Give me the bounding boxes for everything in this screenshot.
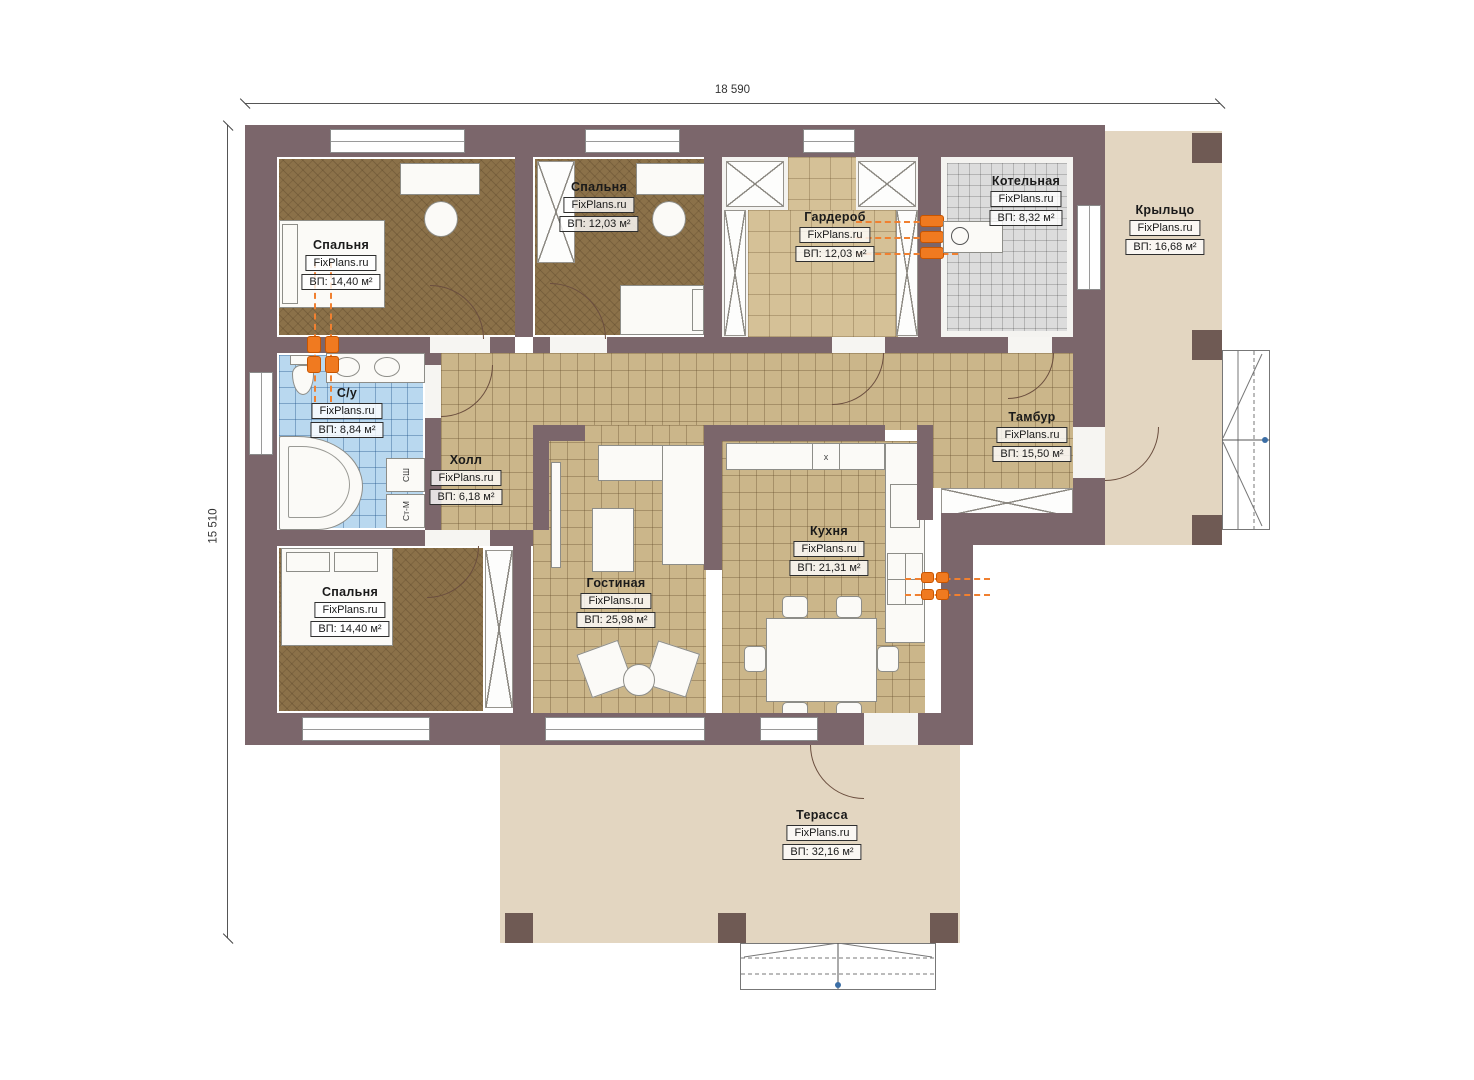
vent-marker: x [812, 443, 840, 470]
window [760, 717, 818, 741]
washer-label: Ст-М [400, 501, 410, 521]
porch-stairs [1222, 350, 1270, 530]
wall-hall-living [533, 441, 549, 530]
window [1077, 205, 1101, 290]
room-label-porch: Крыльцо FixPlans.ru ВП: 16,68 м² [1125, 203, 1204, 255]
wall-bedroom1-right [515, 157, 533, 337]
closet-wardrobe-right [896, 210, 918, 336]
room-area: ВП: 15,50 м² [992, 446, 1071, 462]
door-opening-bedroom-3 [425, 530, 490, 546]
room-label-vestibule: Тамбур FixPlans.ru ВП: 15,50 м² [992, 410, 1071, 462]
dimension-line-left [227, 125, 228, 938]
room-name: Гардероб [795, 210, 874, 224]
dimension-height-label: 15 510 [208, 508, 220, 543]
dining-chair [836, 596, 862, 618]
wall-kitchen-top [722, 425, 885, 441]
room-label-bedroom-1: Спальня FixPlans.ru ВП: 14,40 м² [301, 238, 380, 290]
room-area: ВП: 12,03 м² [559, 216, 638, 232]
heating-manifold [936, 589, 949, 600]
watermark-fixplans: FixPlans.ru [305, 255, 376, 271]
room-name: Спальня [310, 585, 389, 599]
wall-corridor-top [533, 337, 550, 353]
wall-boilerroom-bottom [941, 337, 1008, 353]
room-area: ВП: 21,31 м² [789, 560, 868, 576]
desk-bedroom-2 [636, 163, 706, 195]
window [330, 129, 465, 153]
door-opening-entrance [1073, 427, 1105, 478]
room-name: Котельная [989, 174, 1062, 188]
room-name: Спальня [301, 238, 380, 252]
dimension-tick [223, 933, 234, 944]
heating-manifold [936, 572, 949, 583]
window [302, 717, 430, 741]
room-area: ВП: 14,40 м² [310, 621, 389, 637]
pillow [286, 552, 330, 572]
dining-chair [744, 646, 766, 672]
watermark-fixplans: FixPlans.ru [563, 197, 634, 213]
room-area: ВП: 14,40 м² [301, 274, 380, 290]
terrace-pillar [505, 913, 533, 943]
sink-basin [374, 357, 400, 377]
heating-manifold [921, 572, 934, 583]
chair-bedroom-2 [652, 201, 686, 237]
heating-manifold [307, 356, 321, 373]
watermark-fixplans: FixPlans.ru [786, 825, 857, 841]
wall-bedroom1-bathroom [277, 337, 430, 353]
closet-wardrobe-top-right [858, 161, 916, 207]
window [249, 372, 273, 455]
watermark-fixplans: FixPlans.ru [1129, 220, 1200, 236]
washing-machine: Ст-М [386, 494, 425, 528]
door-opening-boiler-room [1008, 337, 1052, 353]
room-name: Спальня [559, 180, 638, 194]
door-opening-bedroom-1 [430, 337, 490, 353]
room-area: ВП: 32,16 м² [782, 844, 861, 860]
coffee-table [592, 508, 634, 572]
dining-chair [877, 646, 899, 672]
room-area: ВП: 6,18 м² [429, 489, 502, 505]
porch-pillar [1192, 330, 1222, 360]
heating-manifold [920, 247, 944, 259]
door-opening-wardrobe [832, 337, 885, 353]
dryer-unit: СШ [386, 458, 425, 492]
wall-boilerroom-bottom [1052, 337, 1073, 353]
terrace-pillar [930, 913, 958, 943]
porch-pillar [1192, 515, 1222, 545]
room-area: ВП: 12,03 м² [795, 246, 874, 262]
boiler-dial [951, 227, 969, 245]
room-label-living-room: Гостиная FixPlans.ru ВП: 25,98 м² [576, 576, 655, 628]
wall-bedroom1-bathroom [490, 337, 515, 353]
room-name: Гостиная [576, 576, 655, 590]
wall-bathroom-bedroom3 [277, 530, 425, 546]
wall-kitchen-vestibule [917, 425, 933, 520]
dimension-tick [223, 120, 234, 131]
side-table [623, 664, 655, 696]
terrace-pillar [718, 913, 746, 943]
sofa-vertical-section [662, 445, 706, 565]
watermark-fixplans: FixPlans.ru [793, 541, 864, 557]
watermark-fixplans: FixPlans.ru [990, 191, 1061, 207]
closet-wardrobe-left [724, 210, 746, 336]
heating-manifold [920, 215, 944, 227]
wall-corridor-top [885, 337, 941, 353]
watermark-fixplans: FixPlans.ru [580, 593, 651, 609]
room-name: С/у [310, 386, 383, 400]
kitchen-counter-top [726, 443, 885, 470]
wall-bedroom3-top [490, 530, 533, 546]
dimension-line-top [245, 103, 1220, 104]
heating-manifold [325, 336, 339, 353]
watermark-fixplans: FixPlans.ru [314, 602, 385, 618]
wall-living-top [533, 425, 585, 441]
closet-bedroom-3 [485, 550, 513, 708]
room-area: ВП: 8,32 м² [989, 210, 1062, 226]
wall-exterior-right-upper [1073, 125, 1105, 545]
wall-corridor-top [607, 337, 832, 353]
pillow [334, 552, 378, 572]
window [803, 129, 855, 153]
room-area: ВП: 16,68 м² [1125, 239, 1204, 255]
watermark-fixplans: FixPlans.ru [799, 227, 870, 243]
watermark-fixplans: FixPlans.ru [311, 403, 382, 419]
wall-bedroom2-right [704, 157, 722, 337]
floor-plan-canvas: x СШ Ст-М [0, 0, 1474, 1080]
heating-manifold [921, 589, 934, 600]
door-opening-bedroom-2 [550, 337, 607, 353]
heating-manifold [325, 356, 339, 373]
chair-bedroom-1 [424, 201, 458, 237]
wall-exterior-step [941, 513, 1105, 545]
pillow [692, 289, 704, 331]
door-opening-bathroom [425, 365, 441, 418]
dryer-label: СШ [401, 468, 411, 482]
wall-living-kitchen [704, 425, 722, 570]
wall-bathroom-right [425, 353, 441, 365]
porch-pillar [1192, 133, 1222, 163]
room-name: Тамбур [992, 410, 1071, 424]
room-name: Кухня [789, 524, 868, 538]
room-label-hall: Холл FixPlans.ru ВП: 6,18 м² [429, 453, 502, 505]
window [585, 129, 680, 153]
dining-chair [782, 596, 808, 618]
closet-wardrobe-top-left [726, 161, 784, 207]
watermark-fixplans: FixPlans.ru [430, 470, 501, 486]
room-name: Терасса [782, 808, 861, 822]
dining-table [766, 618, 877, 702]
room-label-bedroom-2: Спальня FixPlans.ru ВП: 12,03 м² [559, 180, 638, 232]
window [545, 717, 705, 741]
desk-bedroom-1 [400, 163, 480, 195]
room-name: Холл [429, 453, 502, 467]
room-label-bedroom-3: Спальня FixPlans.ru ВП: 14,40 м² [310, 585, 389, 637]
kitchen-sink [890, 484, 920, 528]
door-opening-terrace [864, 713, 918, 745]
room-name: Крыльцо [1125, 203, 1204, 217]
heating-manifold [920, 231, 944, 243]
wall-bedroom3-right [513, 546, 531, 713]
room-label-wardrobe: Гардероб FixPlans.ru ВП: 12,03 м² [795, 210, 874, 262]
heating-manifold [307, 336, 321, 353]
terrace-stairs [740, 943, 936, 990]
room-label-terrace: Терасса FixPlans.ru ВП: 32,16 м² [782, 808, 861, 860]
room-label-boiler-room: Котельная FixPlans.ru ВП: 8,32 м² [989, 174, 1062, 226]
tv-unit [551, 462, 561, 568]
watermark-fixplans: FixPlans.ru [996, 427, 1067, 443]
dimension-width-label: 18 590 [245, 84, 1220, 96]
room-area: ВП: 25,98 м² [576, 612, 655, 628]
room-label-bathroom: С/у FixPlans.ru ВП: 8,84 м² [310, 386, 383, 438]
room-label-kitchen: Кухня FixPlans.ru ВП: 21,31 м² [789, 524, 868, 576]
room-area: ВП: 8,84 м² [310, 422, 383, 438]
pillow [282, 224, 298, 304]
